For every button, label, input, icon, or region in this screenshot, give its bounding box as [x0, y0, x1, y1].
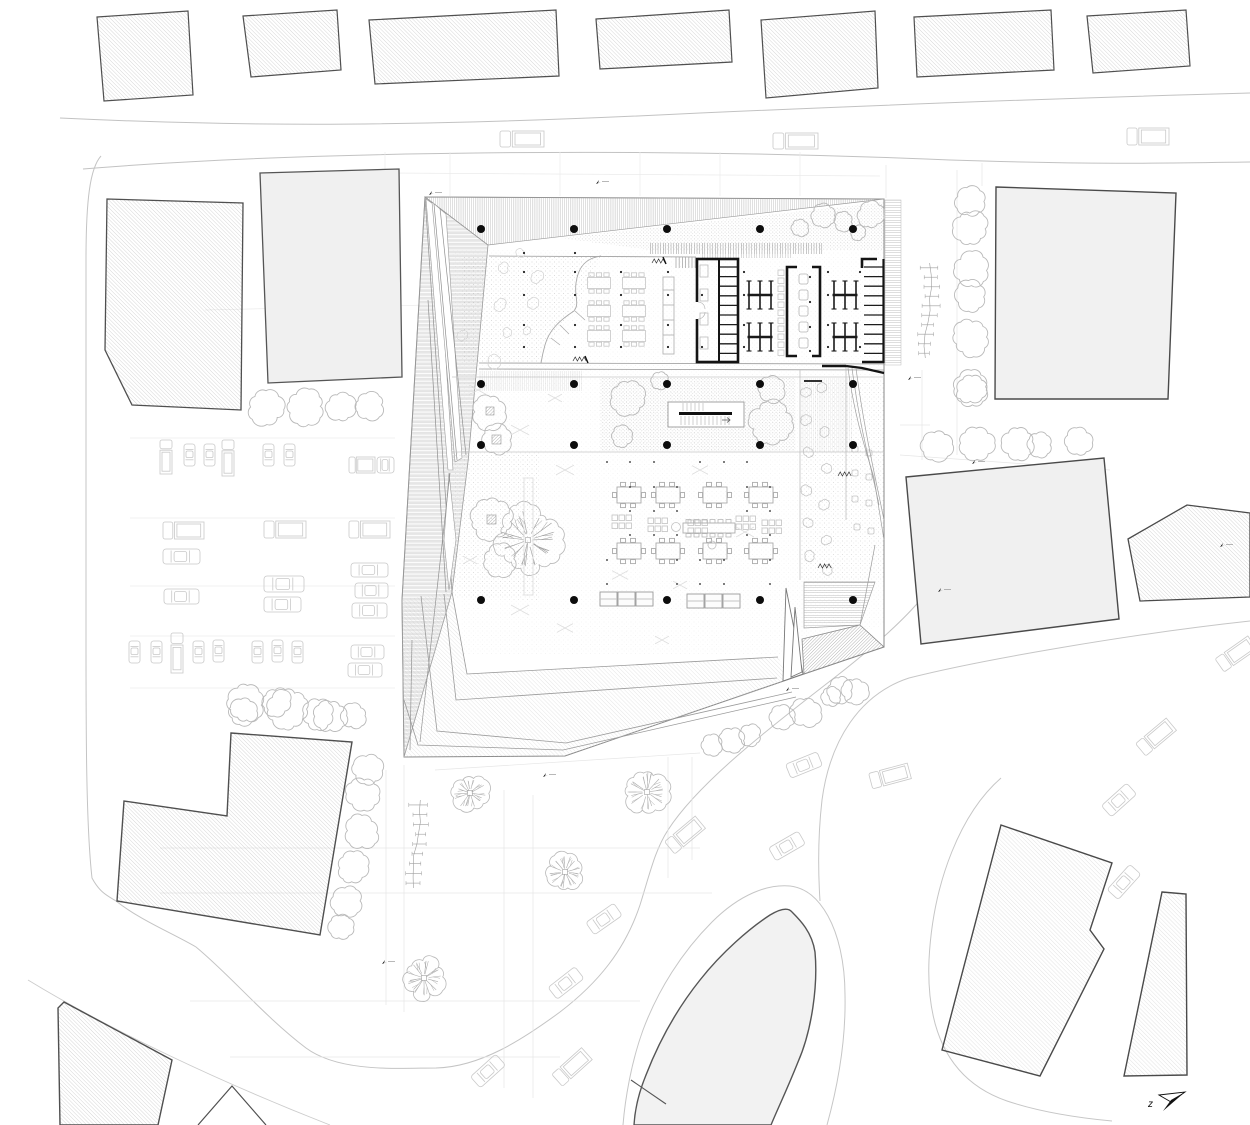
- svg-text:z: z: [1147, 1099, 1153, 1110]
